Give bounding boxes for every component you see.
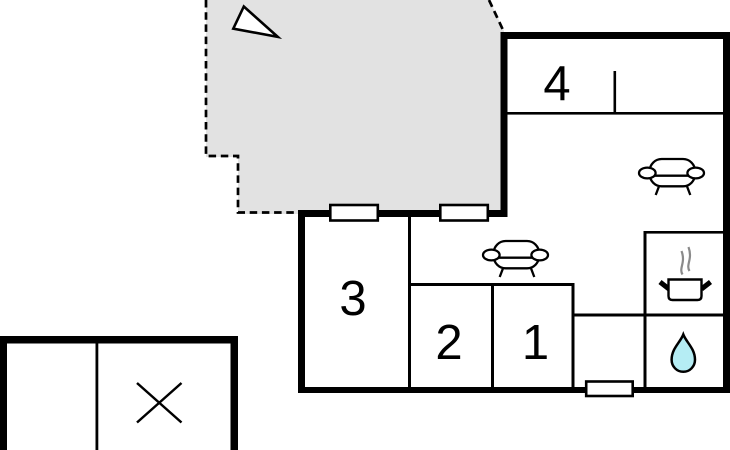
svg-text:3: 3 [339,272,366,326]
svg-text:4: 4 [543,57,570,111]
svg-text:1: 1 [522,316,549,370]
svg-text:2: 2 [435,316,462,370]
